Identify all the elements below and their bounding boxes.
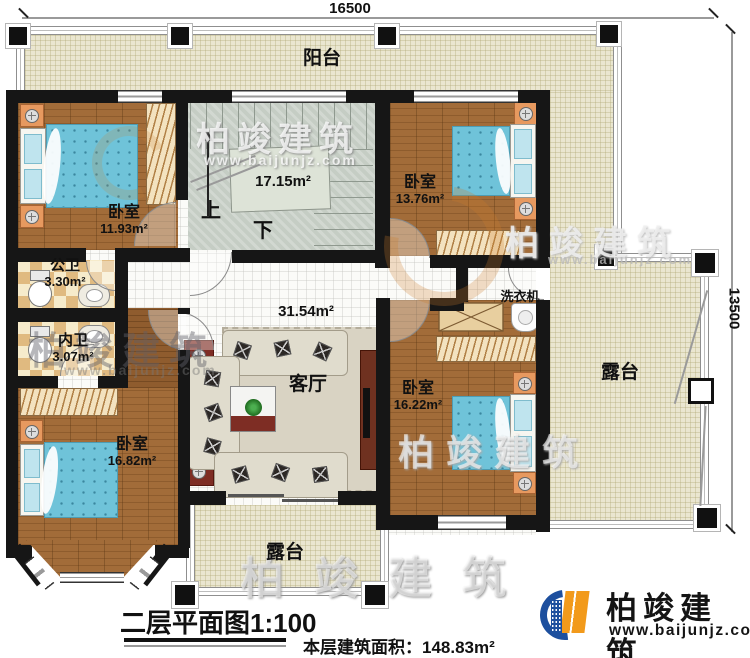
living-label: 客厅 [278, 374, 338, 395]
bedroom-tl-label: 卧室 11.93m² [74, 204, 174, 236]
column [168, 24, 192, 48]
column [375, 24, 399, 48]
bay-window [60, 572, 124, 583]
wall [178, 491, 226, 505]
title-underline [124, 638, 286, 642]
nightstand [20, 104, 44, 127]
column [597, 22, 621, 46]
plan-title: 二层平面图1:100 [120, 603, 317, 640]
wall [178, 308, 190, 314]
bath-ensuite-label: 内卫 3.07m² [30, 333, 116, 364]
title-underline-thin [124, 645, 286, 647]
sliding-door [282, 499, 338, 502]
wardrobe [20, 388, 118, 416]
logo-company-name: 柏竣建筑 [606, 583, 750, 658]
window [118, 90, 162, 103]
nightstand [513, 372, 536, 394]
logo-website: www.baijunjz.com [609, 622, 750, 640]
floor-plan: 16500 13500 [0, 0, 750, 658]
sofa-top [222, 330, 348, 376]
bed-headboard [20, 128, 46, 204]
column [692, 250, 718, 276]
floor-area-value: 148.83m² [422, 638, 495, 657]
top-dimension-line [22, 17, 714, 19]
wall [16, 90, 118, 103]
terrace-right-label: 露台 [590, 362, 650, 383]
column [694, 505, 720, 531]
watermark-url: www.baijunjz.com [64, 362, 217, 378]
stairs-up-label: 上 [196, 200, 226, 222]
bed-headboard [20, 444, 44, 516]
nightstand [514, 102, 537, 125]
stairwell-area-label: 17.15m² [238, 174, 328, 191]
nightstand [20, 205, 44, 228]
window [414, 90, 518, 103]
laundry-label: 洗衣机 [488, 290, 552, 305]
floor-area-label: 本层建筑面积： [303, 638, 422, 657]
balcony-label: 阳台 [292, 48, 352, 69]
bedroom-tr-label: 卧室 13.76m² [370, 174, 470, 206]
terrace-gate [688, 378, 714, 404]
terrace-railing [550, 520, 710, 529]
watermark-url: www.baijunjz.com [204, 152, 357, 168]
bedroom-bl-label: 卧室 16.82m² [82, 436, 182, 468]
nightstand [20, 420, 43, 442]
wall [162, 90, 232, 103]
wall [536, 300, 550, 532]
watermark-text: 柏竣建筑 [398, 424, 590, 476]
plant [245, 399, 262, 416]
wall [390, 515, 438, 530]
window [438, 515, 506, 530]
sliding-door [228, 494, 284, 497]
wall [176, 100, 188, 200]
bath-public-label: 公卫 3.30m² [22, 258, 108, 289]
right-dimension-label: 13500 [726, 279, 743, 339]
bed-headboard [510, 124, 536, 198]
wall [6, 90, 18, 548]
sofa-bottom [214, 452, 348, 498]
living-area-label: 31.54m² [266, 304, 346, 321]
column [6, 24, 30, 48]
top-dimension-label: 16500 [300, 0, 400, 17]
wall [232, 250, 378, 263]
terrace-bottom-label: 露台 [255, 542, 315, 563]
logo-tower-icon [551, 600, 562, 633]
stairs-down-label: 下 [248, 220, 278, 242]
coffee-table [230, 386, 276, 432]
balcony-railing [16, 26, 622, 35]
wall [338, 491, 382, 505]
wall [506, 515, 550, 530]
wall [18, 376, 58, 388]
window [232, 90, 346, 103]
wardrobe [436, 336, 536, 362]
floor-area-note: 本层建筑面积：148.83m² [303, 633, 495, 658]
watermark-url: www.baijunjz.com [548, 252, 692, 267]
bedroom-br-label: 卧室 16.22m² [368, 380, 468, 412]
